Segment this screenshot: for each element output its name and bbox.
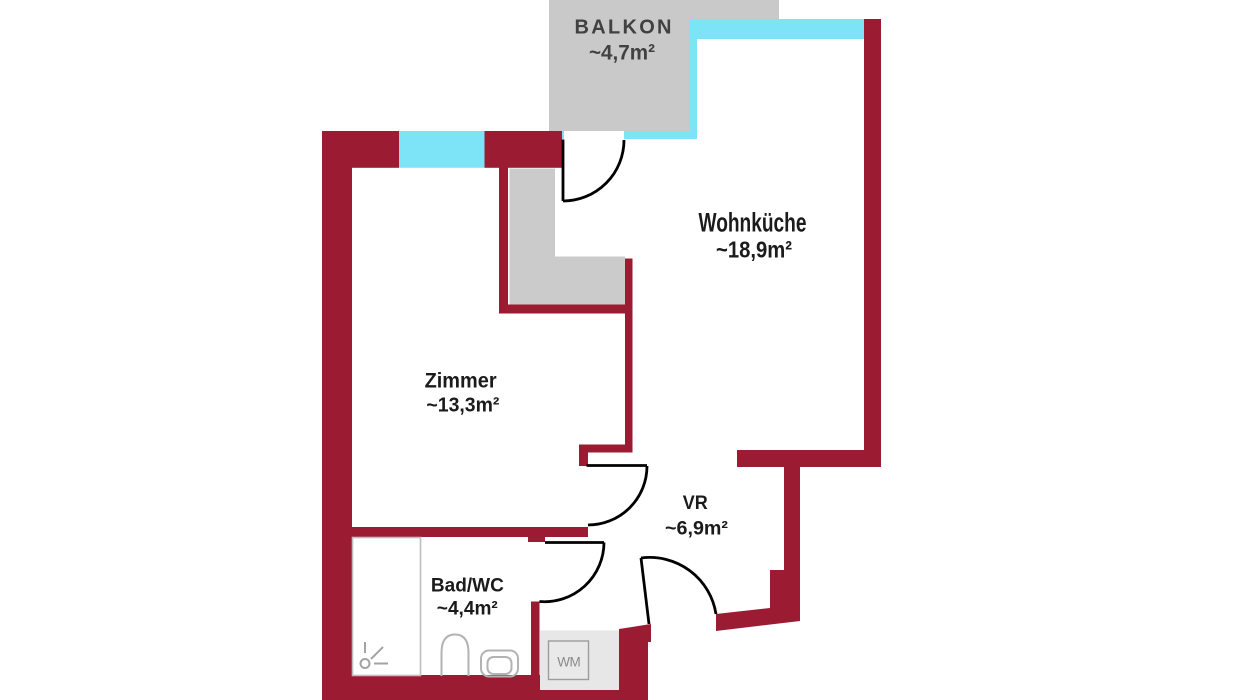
svg-text:Zimmer: Zimmer xyxy=(425,369,498,393)
svg-text:VR: VR xyxy=(683,492,708,514)
svg-text:~4,7m²: ~4,7m² xyxy=(589,41,655,65)
svg-text:Bad/WC: Bad/WC xyxy=(431,576,504,597)
svg-text:~6,9m²: ~6,9m² xyxy=(665,518,729,540)
svg-text:Wohnküche: Wohnküche xyxy=(699,208,807,238)
svg-text:~18,9m²: ~18,9m² xyxy=(716,237,792,263)
svg-text:WM: WM xyxy=(557,655,581,670)
svg-text:~4,4m²: ~4,4m² xyxy=(437,599,498,620)
svg-text:~13,3m²: ~13,3m² xyxy=(426,395,499,417)
